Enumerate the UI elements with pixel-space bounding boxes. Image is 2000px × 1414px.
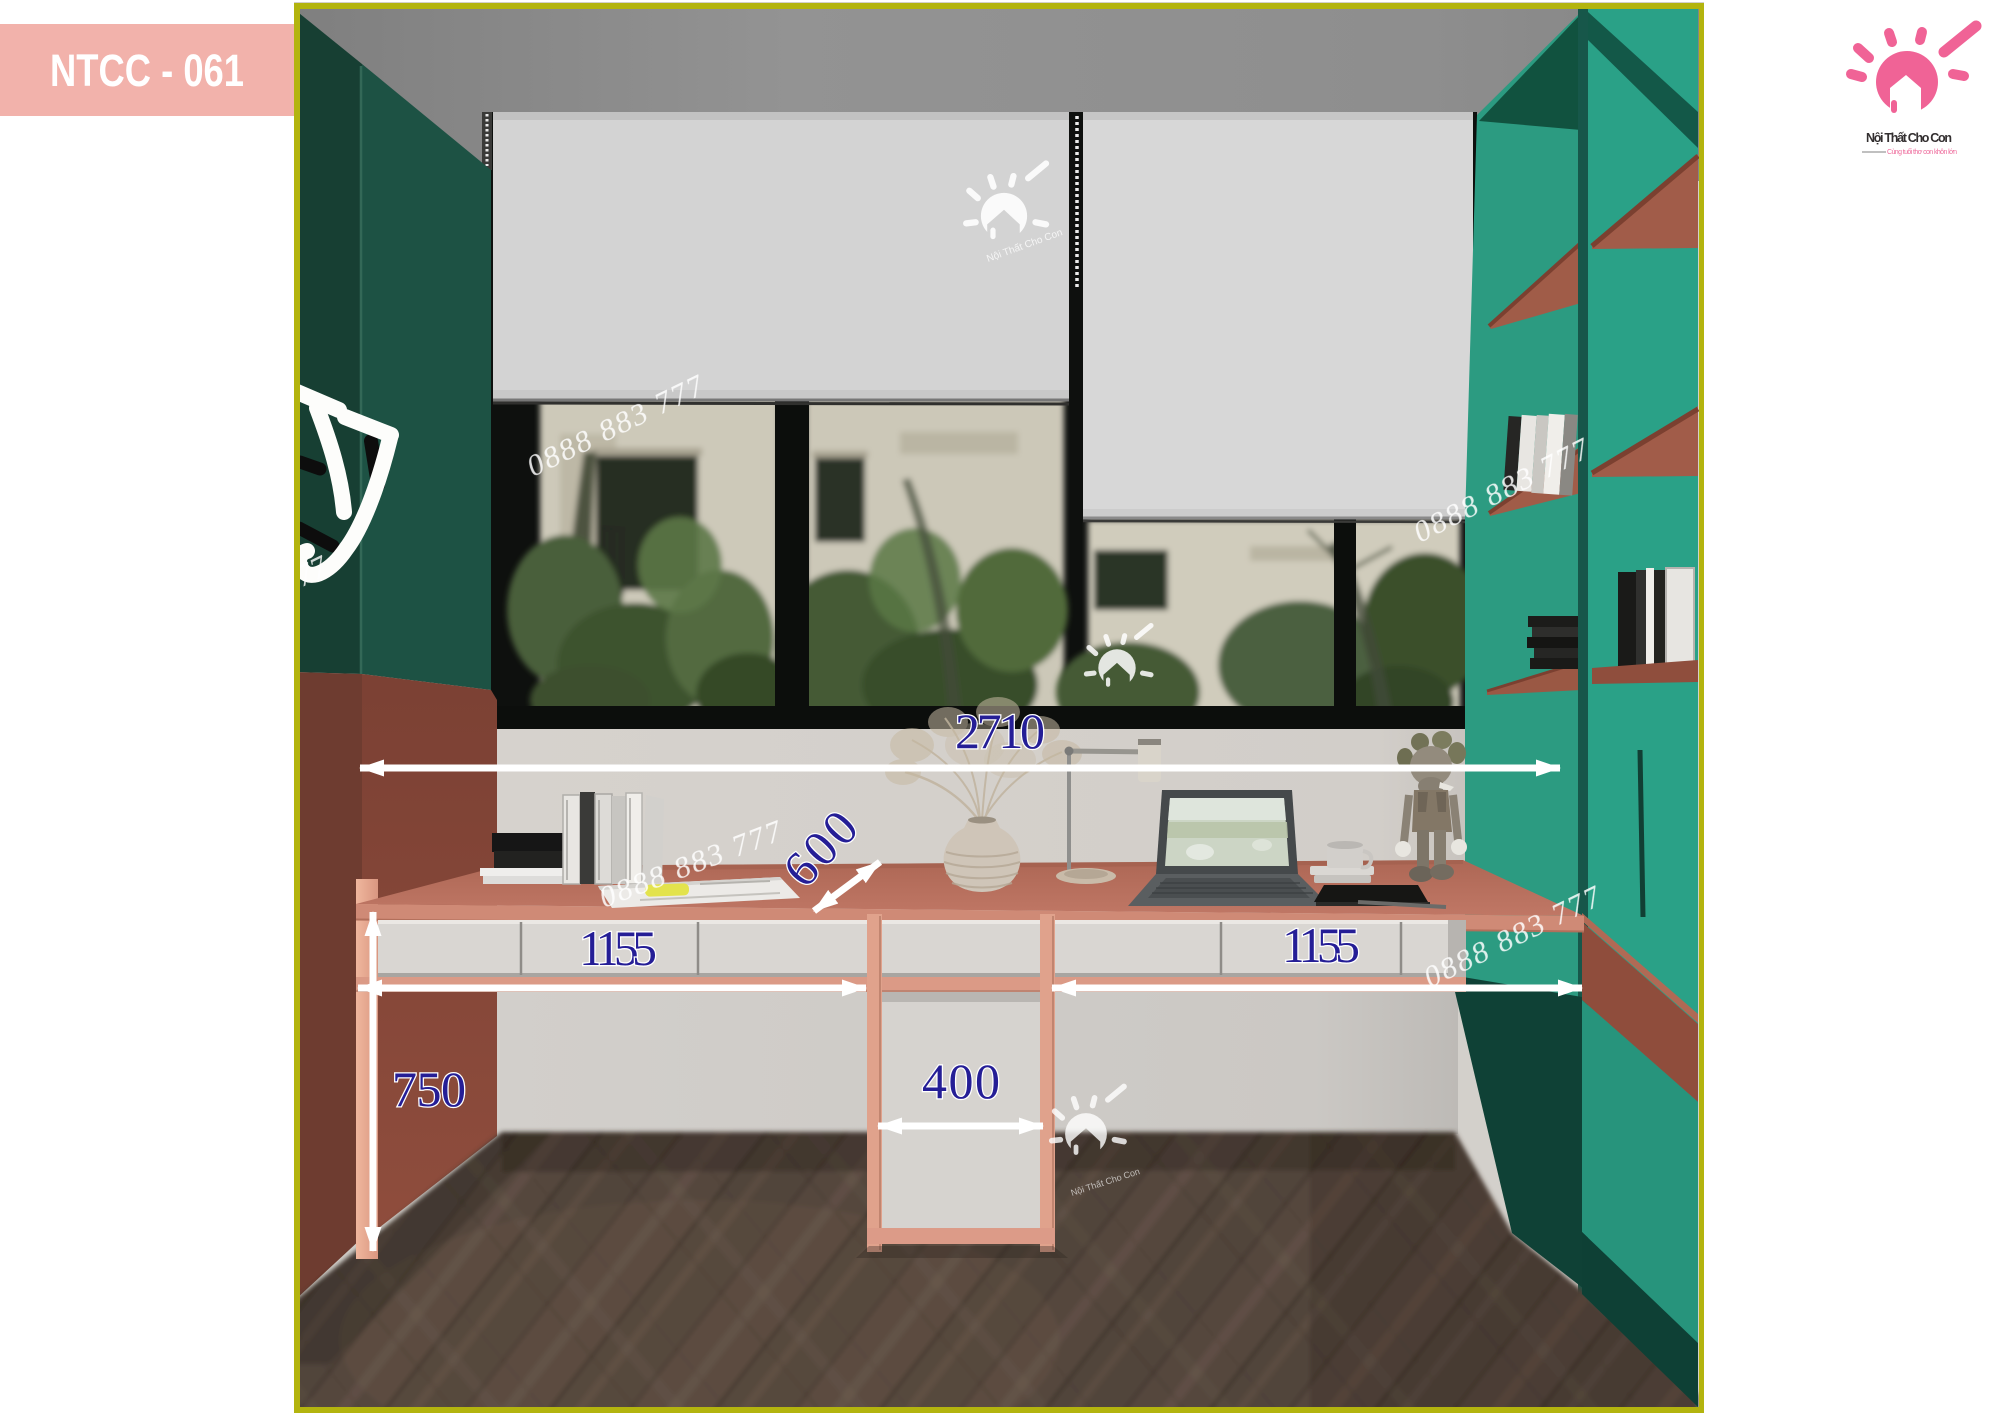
svg-text:750: 750 [392, 1061, 466, 1117]
svg-text:Nội Thất Cho Con: Nội Thất Cho Con [1866, 131, 1952, 145]
svg-text:400: 400 [922, 1053, 1000, 1109]
svg-text:1155: 1155 [1282, 917, 1360, 973]
svg-text:NTCC - 061: NTCC - 061 [50, 45, 244, 96]
svg-text:2710: 2710 [955, 703, 1045, 759]
svg-text:Cùng tuổi thơ con khôn lớn: Cùng tuổi thơ con khôn lớn [1887, 148, 1957, 156]
svg-text:1155: 1155 [579, 920, 657, 976]
